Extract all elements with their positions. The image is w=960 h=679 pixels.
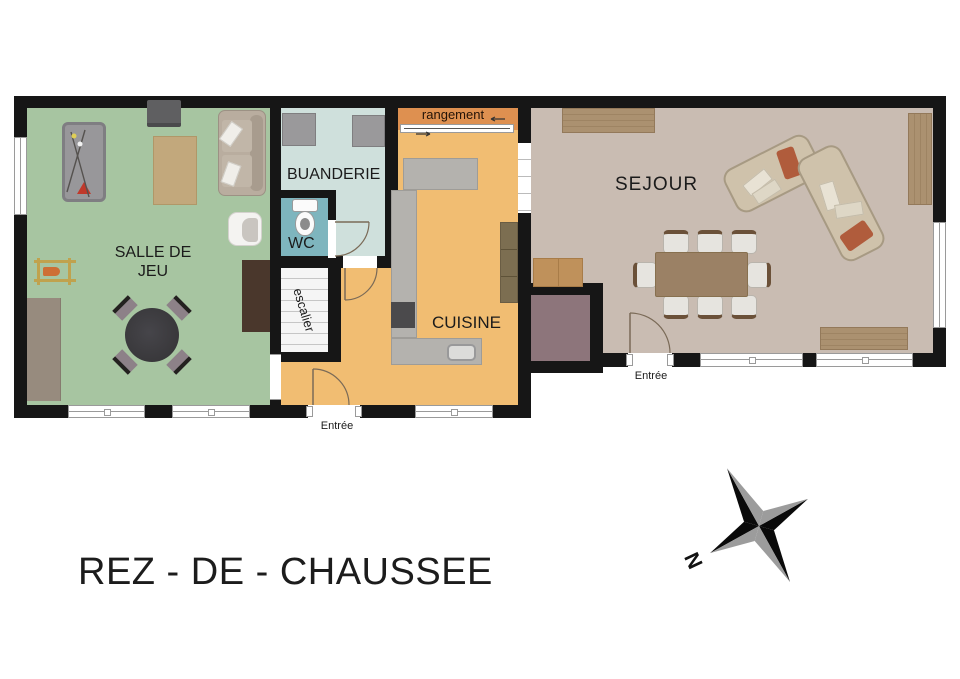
room-label-cuisine: CUISINE <box>432 313 501 333</box>
piano <box>147 100 181 127</box>
compass-point <box>759 499 813 536</box>
window-sejour-bottom-1 <box>700 353 803 367</box>
compass-point <box>727 463 769 526</box>
window-game-bottom-2 <box>172 405 250 418</box>
compass-point <box>717 468 759 531</box>
wall-stairs-bottom <box>281 352 341 362</box>
toilet-bowl <box>295 211 315 236</box>
sled-bar <box>68 258 71 285</box>
sled-bar <box>37 258 40 285</box>
sofa-pillow <box>834 201 864 219</box>
compass-point <box>749 526 790 587</box>
dining-chair <box>697 295 723 319</box>
window-sejour-right <box>933 222 946 328</box>
sliding-door-track <box>404 128 510 129</box>
wall-vestibule-bottom <box>531 361 603 373</box>
window-game-bottom-1 <box>68 405 145 418</box>
door-opening-kitchen-entrance <box>308 405 360 418</box>
dining-chair <box>697 230 723 254</box>
sled-body <box>43 267 60 276</box>
door-opening-buanderie <box>343 256 377 268</box>
stove <box>391 302 415 328</box>
console-divider <box>558 259 559 286</box>
rug-dark-brown <box>242 260 270 332</box>
dining-chair <box>747 262 771 288</box>
compass-point <box>759 521 800 582</box>
room-label-sejour: SEJOUR <box>615 174 698 196</box>
cabinet-left <box>27 298 61 401</box>
door-opening-wc <box>328 220 336 258</box>
window-sejour-bottom-2 <box>816 353 913 367</box>
rug-sejour-top <box>562 108 655 133</box>
compass-point <box>705 516 759 553</box>
entrance-label-kitchen: Entrée <box>317 420 357 432</box>
rug-sejour-bottom <box>820 327 908 350</box>
vestibule-room <box>531 295 590 361</box>
cabinet-divider <box>501 249 517 250</box>
room-label-rangement: rangement <box>398 107 508 122</box>
compass-point <box>710 526 764 563</box>
window-game-left <box>14 137 27 215</box>
window-kitchen-bottom <box>415 405 493 418</box>
sink <box>447 344 476 361</box>
entrance-label-sejour: Entrée <box>631 370 671 382</box>
dining-chair <box>663 230 689 254</box>
opening-game-kitchen <box>270 354 281 400</box>
compass-rose: N <box>676 444 856 624</box>
washing-machine <box>282 113 316 146</box>
door-jamb <box>626 354 633 366</box>
door-jamb <box>355 406 362 417</box>
cuisine-entry <box>281 360 341 405</box>
dining-table <box>655 252 748 297</box>
page-title: REZ - DE - CHAUSSEE <box>78 551 493 594</box>
kitchen-counter-top <box>403 158 478 190</box>
cabinet-divider <box>501 276 517 277</box>
room-label-salle-de-jeu: SALLE DE JEU <box>103 243 203 281</box>
dryer <box>352 115 385 147</box>
cuisine-hall <box>341 268 398 405</box>
sofa-game <box>218 110 266 196</box>
dining-chair <box>663 295 689 319</box>
kitchen-cabinets <box>500 222 518 303</box>
wall-sejour-top <box>531 96 946 108</box>
console-table <box>533 258 583 287</box>
door-jamb <box>306 406 313 417</box>
dining-chair <box>731 230 757 254</box>
rug-sejour-right <box>908 113 932 205</box>
compass-north-label: N <box>681 549 708 572</box>
dining-chair <box>633 262 657 288</box>
round-table <box>125 308 179 362</box>
compass-point <box>754 489 808 526</box>
wall-vestibule-right <box>590 283 603 373</box>
wall-stairs-right <box>328 262 341 360</box>
pool-balls-triangle <box>77 182 91 194</box>
armchair-seat <box>242 218 258 242</box>
sled <box>34 258 76 285</box>
door-opening-sejour-entrance <box>628 353 672 367</box>
room-label-wc: WC <box>288 235 315 253</box>
room-label-buanderie: BUANDERIE <box>287 166 380 184</box>
floor-plan: SALLE DE JEU BUANDERIE WC escalier range… <box>0 0 960 679</box>
rug-game <box>153 136 197 205</box>
armchair <box>228 212 262 246</box>
toilet-seat <box>300 218 310 230</box>
sofa-cushion-rust <box>839 219 874 252</box>
dining-chair <box>731 295 757 319</box>
door-jamb <box>667 354 674 366</box>
passthrough-kitchen-sejour <box>518 143 531 213</box>
